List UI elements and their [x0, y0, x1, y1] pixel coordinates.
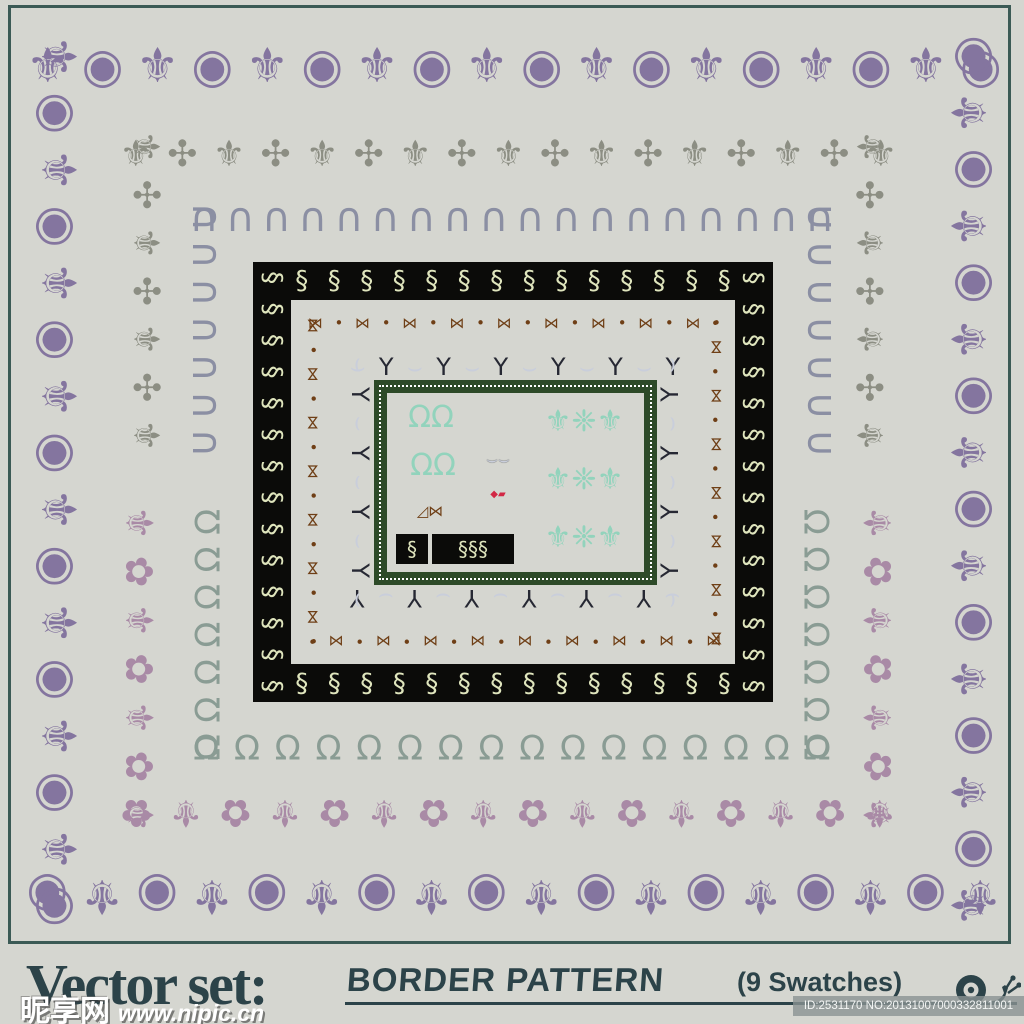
pattern-sample-cream-scroll-unit-wide: §§§	[432, 534, 514, 564]
watermark-site-url: www.nipic.cn	[118, 1000, 264, 1024]
pattern-sample-lavender-swag-unit: ⌣⌣	[474, 448, 522, 472]
pattern-sample-red-accent-units: ◆▰	[480, 488, 516, 502]
border-pattern-sheet: ⚜◉⚜◉⚜◉⚜◉⚜◉⚜◉⚜◉⚜◉⚜◉⚜◉⚜◉⚜◉⚜◉⚜◉⚜◉⚜◉⚜◉⚜◉⚜◉⚜◉…	[0, 0, 1024, 1024]
pattern-sample-teal-bud-pair-middle: ΩΩ	[398, 446, 468, 486]
watermark: 昵享网 www.nipic.cn	[20, 986, 264, 1024]
pattern-sample-teal-corner-motif-1: ⚜❈⚜	[524, 396, 644, 448]
sheet-frame	[8, 5, 1011, 944]
pattern-sample-brown-chain-units: ◿⋈	[398, 500, 462, 522]
pattern-sample-teal-corner-motif-2: ⚜❈⚜	[524, 454, 644, 506]
caption-bar: Vector set: BORDER PATTERN (9 Swatches) …	[0, 950, 1024, 1024]
pattern-sample-cream-scroll-unit-small: §	[396, 534, 428, 564]
image-id-badge: ID:2531170 NO:20131007000332811001	[793, 996, 1024, 1016]
pattern-sample-teal-bud-pair-top: ΩΩ	[396, 398, 466, 438]
series-subtitle: BORDER PATTERN	[346, 963, 665, 996]
pattern-sample-teal-corner-motif-3: ⚜❈⚜	[524, 512, 644, 564]
swatch-count: (9 Swatches)	[737, 969, 902, 996]
watermark-site-name: 昵享网	[20, 986, 110, 1024]
